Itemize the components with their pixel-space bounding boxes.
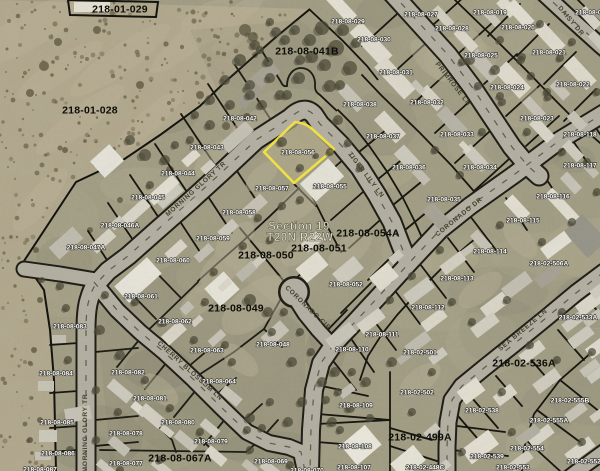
svg-text:218-08-080: 218-08-080 xyxy=(161,420,195,427)
svg-text:218-08-083: 218-08-083 xyxy=(53,324,87,331)
svg-text:218-08-108: 218-08-108 xyxy=(338,444,372,451)
svg-text:218-08-030: 218-08-030 xyxy=(357,37,391,44)
svg-text:MORNING GLORY TR: MORNING GLORY TR xyxy=(82,394,89,471)
svg-text:218-08-084: 218-08-084 xyxy=(39,371,73,378)
svg-text:218-08-056: 218-08-056 xyxy=(281,150,315,157)
svg-text:218-08-041B: 218-08-041B xyxy=(275,46,339,58)
svg-text:218-08-031: 218-08-031 xyxy=(379,70,413,77)
svg-text:218-08-113: 218-08-113 xyxy=(440,276,474,283)
svg-text:218-08-024: 218-08-024 xyxy=(490,85,524,92)
svg-text:218-02-501: 218-02-501 xyxy=(403,350,437,357)
svg-text:218-08-054A: 218-08-054A xyxy=(336,228,400,240)
svg-text:218-08-021: 218-08-021 xyxy=(532,50,566,57)
svg-text:218-08-019: 218-08-019 xyxy=(473,10,507,17)
svg-text:218-08-042: 218-08-042 xyxy=(223,116,257,123)
svg-text:218-08-035: 218-08-035 xyxy=(427,197,461,204)
svg-text:218-01-028: 218-01-028 xyxy=(62,105,118,117)
svg-text:218-08-047A: 218-08-047A xyxy=(67,245,106,252)
svg-text:218-08-062: 218-08-062 xyxy=(158,319,192,326)
svg-text:218-02-555A: 218-02-555A xyxy=(530,418,569,425)
svg-text:218-08-064: 218-08-064 xyxy=(202,379,236,386)
svg-text:218-08-051: 218-08-051 xyxy=(291,243,347,255)
svg-text:218-02-553: 218-02-553 xyxy=(496,465,530,471)
svg-text:218-08-025: 218-08-025 xyxy=(464,53,498,60)
svg-text:218-08-069: 218-08-069 xyxy=(254,459,288,466)
svg-text:218-08-118: 218-08-118 xyxy=(563,132,597,139)
svg-text:218-08-037: 218-08-037 xyxy=(366,134,400,141)
svg-text:218-08-070: 218-08-070 xyxy=(290,468,324,471)
svg-text:218-02-502: 218-02-502 xyxy=(400,390,434,397)
svg-text:218-02-506A: 218-02-506A xyxy=(530,261,569,268)
svg-text:218-08-049: 218-08-049 xyxy=(208,303,264,315)
svg-text:218-08-110: 218-08-110 xyxy=(335,347,369,354)
svg-text:218-08-032: 218-08-032 xyxy=(410,100,444,107)
svg-text:218-02-555B: 218-02-555B xyxy=(551,398,590,405)
svg-text:218-02-538: 218-02-538 xyxy=(465,408,499,415)
svg-text:218-08-058: 218-08-058 xyxy=(222,210,256,217)
svg-text:218-08-036: 218-08-036 xyxy=(392,165,426,172)
svg-text:218-08-114: 218-08-114 xyxy=(473,249,507,256)
svg-text:218-02-448C: 218-02-448C xyxy=(406,465,445,471)
svg-text:218-08-063: 218-08-063 xyxy=(190,348,224,355)
svg-text:218-08-115: 218-08-115 xyxy=(506,218,540,225)
svg-text:218-02-554: 218-02-554 xyxy=(510,446,544,453)
svg-text:218-08-112: 218-08-112 xyxy=(411,305,445,312)
svg-text:218-08-038: 218-08-038 xyxy=(343,102,377,109)
svg-text:218-08-028: 218-08-028 xyxy=(435,26,469,33)
svg-text:218-08-081: 218-08-081 xyxy=(133,396,167,403)
svg-text:218-08-027: 218-08-027 xyxy=(404,12,438,19)
svg-text:218-08-109: 218-08-109 xyxy=(339,403,373,410)
svg-text:218-08-107: 218-08-107 xyxy=(337,465,371,471)
svg-text:218-08-111: 218-08-111 xyxy=(365,332,398,339)
svg-text:218-02-499A: 218-02-499A xyxy=(388,432,452,444)
svg-text:218-08-116: 218-08-116 xyxy=(536,194,570,201)
svg-text:218-08-020: 218-08-020 xyxy=(501,25,535,32)
svg-text:218-08-087: 218-08-087 xyxy=(23,467,57,471)
svg-text:218-08-023: 218-08-023 xyxy=(520,116,554,123)
svg-text:218-08-061: 218-08-061 xyxy=(124,294,158,301)
svg-text:218-08-060: 218-08-060 xyxy=(156,258,190,265)
svg-text:218-08-046A: 218-08-046A xyxy=(101,223,140,230)
svg-text:218-08-117: 218-08-117 xyxy=(563,163,597,170)
svg-text:218-02-533A: 218-02-533A xyxy=(559,315,598,322)
svg-text:218-02-539: 218-02-539 xyxy=(470,454,504,461)
svg-text:218-08-055: 218-08-055 xyxy=(313,184,347,191)
svg-text:218-08-029: 218-08-029 xyxy=(331,19,365,26)
svg-text:218-08-057: 218-08-057 xyxy=(255,186,289,193)
svg-text:218-08-012: 218-08-012 xyxy=(575,10,600,17)
svg-text:218-08-067A: 218-08-067A xyxy=(148,453,212,465)
svg-text:218-08-033: 218-08-033 xyxy=(440,132,474,139)
svg-text:218-08-034: 218-08-034 xyxy=(463,165,497,172)
svg-text:218-02-536A: 218-02-536A xyxy=(492,358,556,370)
svg-text:218-08-082: 218-08-082 xyxy=(111,370,145,377)
svg-text:218-08-059: 218-08-059 xyxy=(196,236,230,243)
svg-text:218-08-052: 218-08-052 xyxy=(329,282,363,289)
svg-text:218-08-048: 218-08-048 xyxy=(256,342,290,349)
svg-text:218-08-086: 218-08-086 xyxy=(41,451,75,458)
svg-text:218-08-045: 218-08-045 xyxy=(131,195,165,202)
svg-text:218-02-552: 218-02-552 xyxy=(567,459,600,466)
svg-text:218-08-077: 218-08-077 xyxy=(109,461,143,468)
svg-text:218-08-022: 218-08-022 xyxy=(556,82,590,89)
svg-text:218-08-079: 218-08-079 xyxy=(194,439,228,446)
svg-text:218-08-043: 218-08-043 xyxy=(190,145,224,152)
svg-text:218-08-044: 218-08-044 xyxy=(161,171,195,178)
svg-text:T20N R22W: T20N R22W xyxy=(267,232,334,244)
svg-text:218-08-078: 218-08-078 xyxy=(109,431,143,438)
svg-text:218-01-029: 218-01-029 xyxy=(92,4,148,16)
svg-text:218-08-050: 218-08-050 xyxy=(238,250,294,262)
svg-text:218-08-085: 218-08-085 xyxy=(40,420,74,427)
